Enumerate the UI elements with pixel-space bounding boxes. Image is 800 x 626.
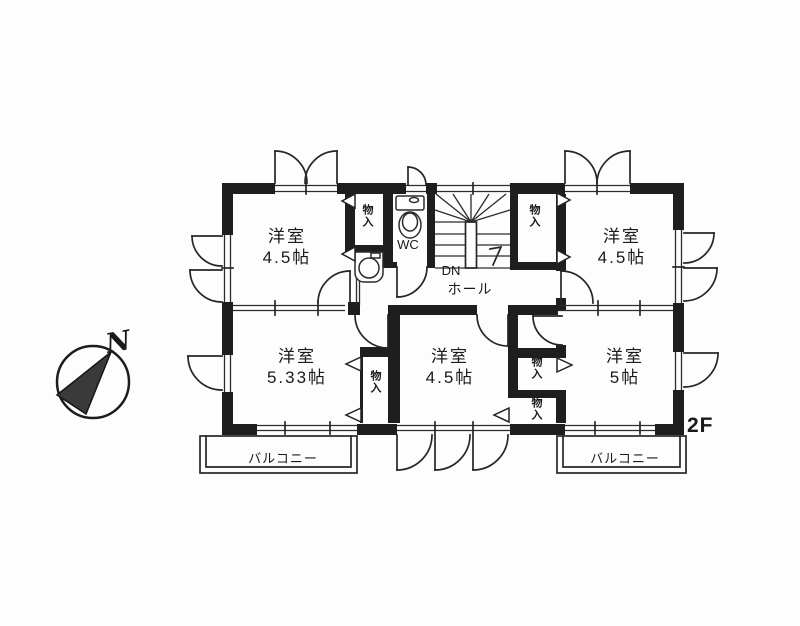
- closet-bottom-right-upper-label: 物入: [530, 356, 541, 380]
- closet-top-left-label: 物入: [361, 204, 372, 228]
- room-size: 4.5帖: [390, 367, 510, 388]
- closet-top-right-label: 物入: [528, 204, 539, 228]
- room-name: 洋室: [565, 346, 685, 367]
- room-size: 5.33帖: [237, 367, 357, 388]
- room-top-left-label: 洋室 4.5帖: [227, 226, 347, 268]
- room-name: 洋室: [562, 226, 682, 247]
- room-size: 4.5帖: [562, 247, 682, 268]
- room-name: 洋室: [390, 346, 510, 367]
- room-bottom-right-label: 洋室 5帖: [565, 346, 685, 388]
- balcony-right-label: バルコニー: [565, 448, 685, 467]
- room-top-right-label: 洋室 4.5帖: [562, 226, 682, 268]
- room-bottom-middle-label: 洋室 4.5帖: [390, 346, 510, 388]
- closet-bottom-right-lower-label: 物入: [530, 397, 541, 421]
- wc-label: WC: [390, 237, 426, 252]
- toilet-icon: [396, 196, 424, 238]
- closet-bottom-left-label: 物入: [369, 370, 380, 394]
- balcony-left-label: バルコニー: [223, 448, 343, 467]
- room-name: 洋室: [237, 346, 357, 367]
- room-name: 洋室: [227, 226, 347, 247]
- floor-number-label: 2F: [687, 414, 714, 438]
- room-bottom-left-label: 洋室 5.33帖: [237, 346, 357, 388]
- hall-label: ホール: [438, 279, 502, 299]
- washbasin-icon: [355, 252, 383, 282]
- floor-plan-page: 洋室 4.5帖 洋室 4.5帖 洋室 5.33帖 洋室 4.5帖 洋室 5帖 物…: [0, 0, 800, 626]
- stairs-down-label: DN: [436, 263, 466, 278]
- floor-plan-drawing: [0, 0, 800, 626]
- room-size: 5帖: [565, 367, 685, 388]
- staircase: [435, 194, 510, 268]
- room-size: 4.5帖: [227, 247, 347, 268]
- compass-north-label: N: [103, 325, 133, 360]
